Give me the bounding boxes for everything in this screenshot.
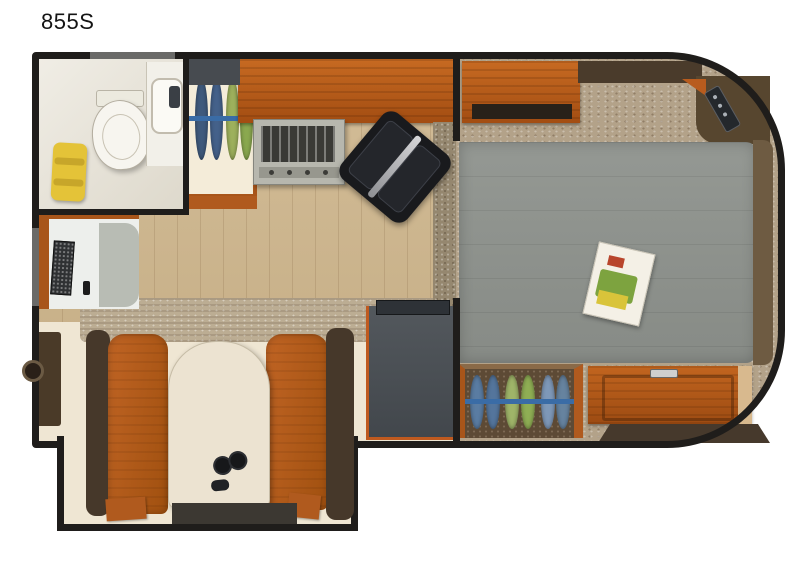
- dresser-end-panel: [738, 366, 752, 424]
- bench-seat-right: [266, 334, 328, 510]
- binoculars: [208, 445, 251, 483]
- kitchen-counter: [238, 59, 455, 123]
- dresser-drawer-panel: [602, 375, 734, 421]
- stove-knob: [287, 170, 292, 175]
- dish-cabinet-base: [185, 196, 257, 209]
- tv-cabinet: [39, 213, 139, 309]
- vent-panel: [183, 59, 240, 85]
- door-knob-icon: [22, 360, 44, 382]
- remote-button: [722, 112, 727, 117]
- magazine-art: [607, 255, 625, 268]
- entry-floor-mat: [172, 503, 297, 524]
- bench-back-left: [86, 330, 110, 516]
- bed-bolster: [753, 140, 773, 365]
- stove-knob: [269, 170, 274, 175]
- window: [32, 228, 39, 306]
- toilet-lid: [100, 112, 143, 162]
- dinette-table: [168, 341, 270, 509]
- shoe-rail: [465, 399, 574, 404]
- cabinet-panel: [99, 223, 139, 307]
- bench-base-trim: [105, 497, 146, 522]
- dresser: [588, 366, 752, 424]
- cabinet-slot: [472, 104, 572, 119]
- towel-fold: [53, 178, 83, 187]
- bathroom-faucet-icon: [169, 86, 180, 108]
- stove-controls: [259, 167, 339, 178]
- cabinet-handle: [83, 281, 90, 295]
- refrigerator: [366, 306, 456, 440]
- stove-knob: [323, 170, 328, 175]
- towel-fold: [54, 157, 84, 166]
- bench-seat-left: [108, 334, 168, 514]
- remote-button: [712, 94, 717, 99]
- stove-grill: [261, 126, 335, 162]
- bathroom-wall: [183, 59, 189, 215]
- step-mat: [598, 424, 770, 443]
- bathroom-sink: [146, 62, 187, 166]
- refrigerator-vent: [376, 300, 450, 315]
- bench-back-right: [326, 328, 354, 520]
- camera: [211, 479, 230, 492]
- remote-button: [717, 103, 722, 108]
- shoe-storage: [459, 364, 583, 438]
- divider-wall: [453, 59, 460, 141]
- towels: [51, 142, 88, 202]
- stove-knob: [305, 170, 310, 175]
- window: [90, 52, 175, 59]
- tv: [50, 240, 75, 295]
- model-title: 855S: [41, 9, 94, 35]
- range-stove: [253, 119, 345, 185]
- dresser-handle: [650, 369, 678, 378]
- bathroom-wall: [39, 209, 189, 215]
- divider-wall: [453, 298, 460, 441]
